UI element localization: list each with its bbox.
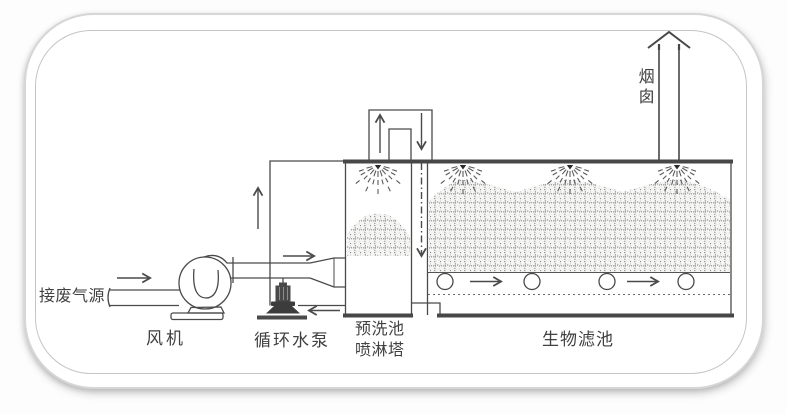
diffuser-cone <box>310 258 346 288</box>
biofilter-tank <box>412 161 734 316</box>
label-prewash-pool: 预洗池 <box>355 321 405 339</box>
tower-spray-nozzle <box>356 165 400 194</box>
chimney-up-arrowhead <box>648 32 690 48</box>
biofilter-packing-media <box>428 179 730 272</box>
chimney-stack <box>648 32 690 160</box>
label-chimney: 烟囱 <box>635 68 653 108</box>
label-waste-gas-source: 接废气源 <box>39 288 105 306</box>
process-flow-diagram: 接废气源 风机 循环水泵 预洗池 喷淋塔 生物滤池 烟囱 <box>0 0 787 415</box>
circulating-pump <box>257 278 307 318</box>
label-biofilter: 生物滤池 <box>542 331 614 350</box>
label-circulating-pump: 循环水泵 <box>254 332 330 351</box>
crossover-duct <box>369 110 432 161</box>
label-fan: 风机 <box>146 330 186 349</box>
gas-inlet-pipe <box>108 288 180 307</box>
label-spray-tower: 喷淋塔 <box>355 342 405 360</box>
tower-packing-media <box>346 214 410 257</box>
